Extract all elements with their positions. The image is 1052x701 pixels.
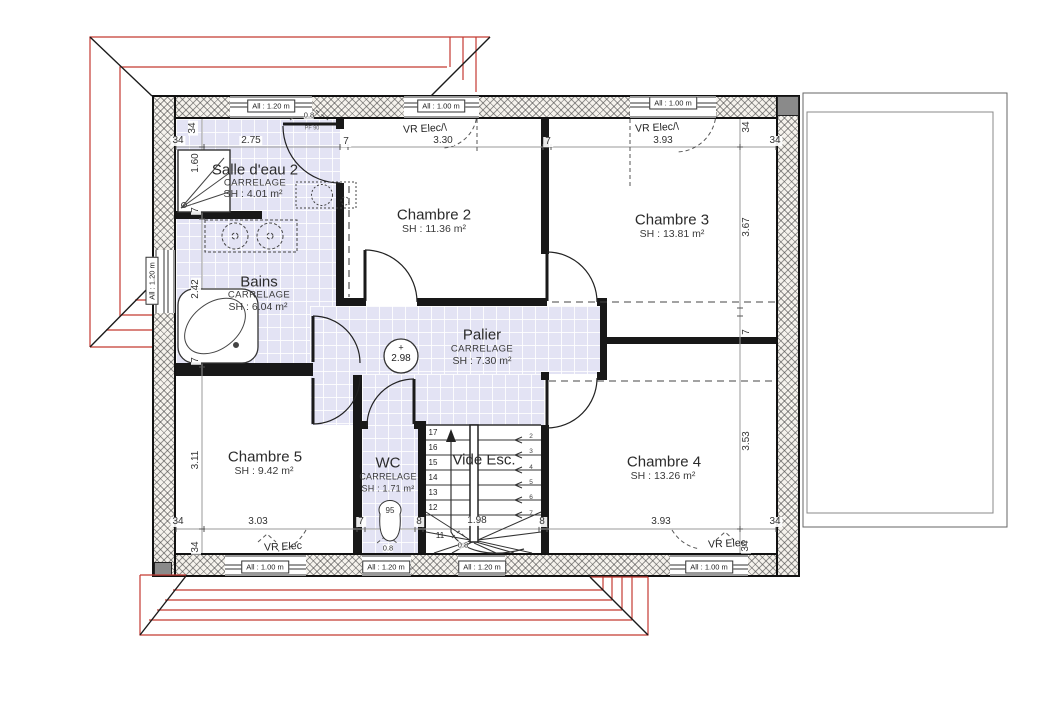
dim-top-7b: 7 <box>543 137 553 147</box>
stair-step-16: 16 <box>429 444 438 452</box>
room-label-vide-esc: Vide Esc. <box>452 453 515 468</box>
stair-step-r-6: 6 <box>529 495 533 502</box>
area-palier: SH : 7.30 m² <box>453 356 512 367</box>
dim-top-7a: 7 <box>341 137 351 147</box>
finish-salle-deau-2: CARRELAGE <box>224 178 286 188</box>
dim-bot-303: 3.03 <box>246 517 269 527</box>
area-wc: SH : 1.71 m² <box>362 485 415 494</box>
stair-step-11: 11 <box>436 532 444 540</box>
stair-step-15: 15 <box>429 459 438 467</box>
stair-step-13: 13 <box>429 489 438 497</box>
dim-left-7b: 7 <box>191 355 201 365</box>
plan-linework <box>0 0 1052 701</box>
room-label-chambre-4: Chambre 4 <box>627 455 701 470</box>
dim-top-34b: 34 <box>767 136 782 146</box>
dim-right-7: 7 <box>742 327 752 337</box>
dim-left-242: 2.42 <box>191 277 201 300</box>
ann-toilet-95: 95 <box>386 507 395 515</box>
dim-bot-34a: 34 <box>170 517 185 527</box>
dim-right-353: 3.53 <box>742 429 752 452</box>
vr-label-top-2: VR Elec/\ <box>635 122 679 135</box>
stair-step-12: 12 <box>429 504 438 512</box>
vr-label-top-1: VR Elec/\ <box>403 123 447 136</box>
window-sill-label-3: All : 1.00 m <box>649 97 697 110</box>
area-bains: SH : 6.04 m² <box>229 302 288 313</box>
dim-bot-198: 1.98 <box>465 516 488 526</box>
dim-bot-34-rot-l: 34 <box>191 539 201 554</box>
area-chambre-4: SH : 13.26 m² <box>631 471 696 482</box>
window-sill-label-4: All : 1.00 m <box>241 561 289 574</box>
vr-label-bot-1: VR Elec <box>264 541 302 553</box>
dim-right-367: 3.67 <box>742 215 752 238</box>
finish-bains: CARRELAGE <box>228 290 290 300</box>
dim-top-34-rot-l: 34 <box>188 120 198 135</box>
floor-plan: Salle d'eau 2CARRELAGESH : 4.01 m²BainsC… <box>0 0 1052 701</box>
stair-step-r-7: 7 <box>529 510 533 517</box>
ann-08-top: 0.8 <box>304 111 314 119</box>
roof-hip-diagonals <box>90 37 648 635</box>
window-sill-label-6: All : 1.20 m <box>458 561 506 574</box>
dim-top-34a: 34 <box>170 136 185 146</box>
window-sill-label-5: All : 1.20 m <box>362 561 410 574</box>
stair-step-r-3: 3 <box>529 449 533 456</box>
bathroom-fixtures <box>174 150 401 541</box>
dim-bot-34b: 34 <box>767 517 782 527</box>
area-chambre-5: SH : 9.42 m² <box>235 466 294 477</box>
dim-top-393: 3.93 <box>651 136 674 146</box>
finish-palier: CARRELAGE <box>451 344 513 354</box>
dim-bot-8b: 8 <box>537 517 547 527</box>
dim-top-330: 3.30 <box>431 136 454 146</box>
room-label-chambre-5: Chambre 5 <box>228 450 302 465</box>
doors <box>283 124 597 428</box>
annex-outline <box>803 93 1007 527</box>
dim-bot-393: 3.93 <box>649 517 672 527</box>
finish-wc: CARRELAGE <box>359 473 416 482</box>
room-label-salle-deau-2: Salle d'eau 2 <box>212 163 298 178</box>
stair-step-r-5: 5 <box>529 480 533 487</box>
dim-top-34-rot-r: 34 <box>742 119 752 134</box>
room-label-chambre-2: Chambre 2 <box>397 208 471 223</box>
vr-label-bot-2: VR Elec <box>708 538 746 550</box>
door-leaves <box>283 124 547 428</box>
level-plus: + <box>398 344 403 353</box>
stair-step-r-2: 2 <box>529 434 533 441</box>
area-salle-deau-2: SH : 4.01 m² <box>224 189 283 200</box>
level-value: 2.98 <box>391 354 410 364</box>
area-chambre-3: SH : 13.81 m² <box>640 229 705 240</box>
room-label-palier: Palier <box>463 328 501 343</box>
room-label-wc: WC <box>376 456 401 471</box>
dim-bot-7: 7 <box>356 517 366 527</box>
stair-step-17: 17 <box>429 429 438 437</box>
window-sill-label-2: All : 1.00 m <box>417 100 465 113</box>
window-sill-label-8: All : 1.20 m <box>146 257 159 305</box>
dim-left-160: 1.60 <box>191 151 201 174</box>
dim-top-275: 2.75 <box>239 136 262 146</box>
washbasin-sde2 <box>296 182 356 208</box>
window-sill-label-7: All : 1.00 m <box>685 561 733 574</box>
ann-08-wc: 0.8 <box>383 544 393 552</box>
stair-step-r-4: 4 <box>529 464 533 471</box>
ann-pf90: PF 90 <box>305 126 320 132</box>
room-label-chambre-3: Chambre 3 <box>635 213 709 228</box>
roof-overhang-lines <box>90 37 648 635</box>
double-washbasin-bains <box>205 220 297 252</box>
stair-step-14: 14 <box>429 474 438 482</box>
window-sill-label-1: All : 1.20 m <box>247 100 295 113</box>
dim-left-311: 3.11 <box>191 449 201 472</box>
door-swing-arcs <box>283 126 597 428</box>
room-label-bains: Bains <box>240 275 278 290</box>
area-chambre-2: SH : 11.36 m² <box>402 224 466 235</box>
ann-08-stair: 0.8 <box>458 541 468 549</box>
dim-left-7a: 7 <box>191 205 201 215</box>
dim-bot-8a: 8 <box>414 517 424 527</box>
shower <box>178 150 230 212</box>
